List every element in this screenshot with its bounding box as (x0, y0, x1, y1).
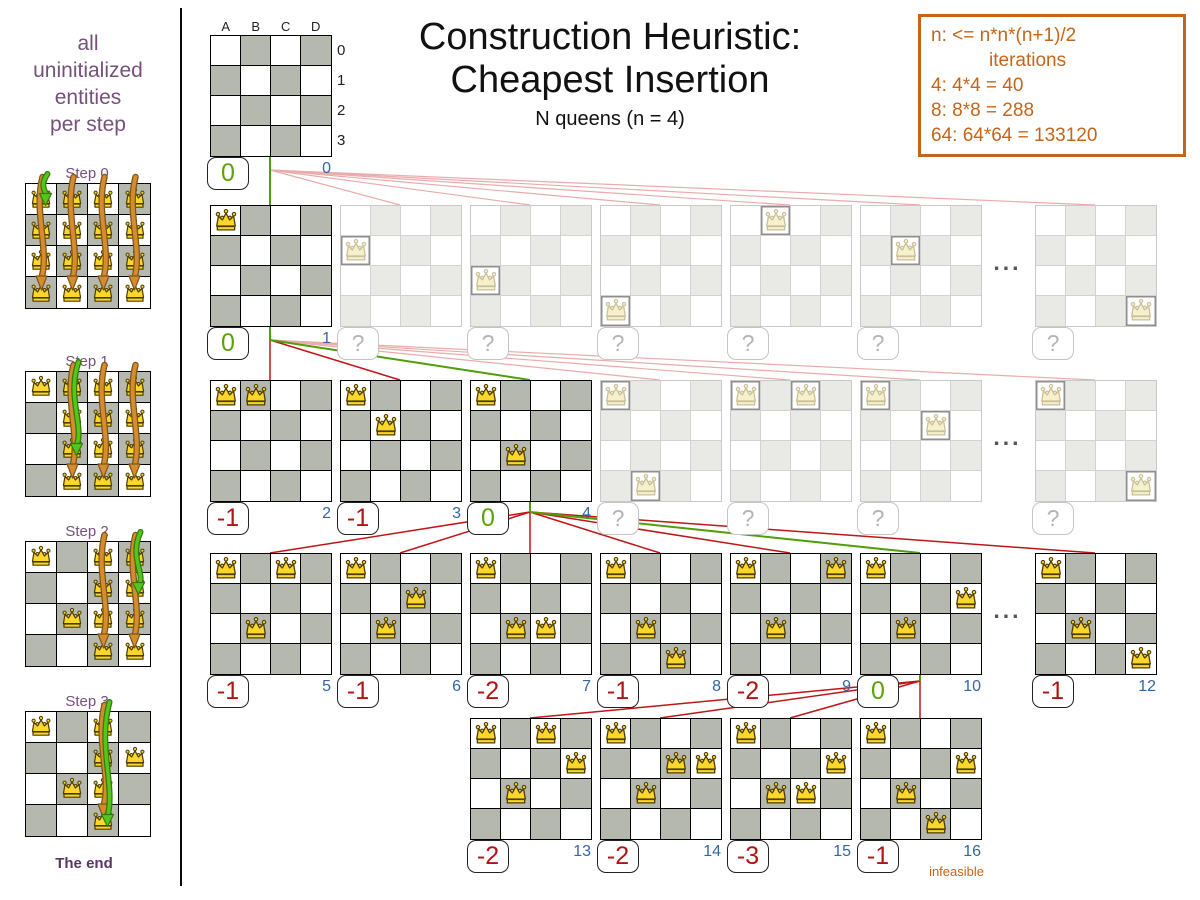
board-cell (341, 584, 371, 614)
score-badge: ? (727, 327, 769, 360)
board-cell (921, 554, 951, 584)
chessboard-grid (471, 381, 591, 501)
ellipsis: ... (980, 249, 1035, 276)
queen-icon (503, 781, 529, 807)
board-cell (431, 266, 461, 296)
board-cell (601, 381, 631, 411)
board-cell (271, 36, 301, 66)
board-cell (1126, 554, 1156, 584)
queen-icon (823, 751, 849, 777)
board-cell (731, 206, 761, 236)
board-cell (341, 206, 371, 236)
board-cell (341, 644, 371, 674)
board-cell (1096, 471, 1126, 501)
step-arrows (26, 372, 150, 496)
queen-icon (473, 383, 499, 409)
board-index: 10 (963, 678, 981, 696)
board-cell (691, 749, 721, 779)
board-cell (631, 381, 661, 411)
board-cell (561, 236, 591, 266)
board-cell (951, 441, 981, 471)
board-cell (1126, 411, 1156, 441)
board-cell (241, 441, 271, 471)
queen-icon (273, 556, 299, 582)
queen-icon (213, 208, 239, 234)
board-cell (471, 381, 501, 411)
board-cell (531, 206, 561, 236)
caption-line: uninitialized (6, 57, 170, 84)
board-cell (601, 441, 631, 471)
board-cell (531, 411, 561, 441)
board-cell (371, 614, 401, 644)
board-cell (731, 809, 761, 839)
chessboard-grid (1036, 554, 1156, 674)
chessboard-grid (471, 554, 591, 674)
board-cell (821, 266, 851, 296)
board-cell (271, 266, 301, 296)
board-index: 2 (322, 505, 331, 523)
board-cell (821, 554, 851, 584)
board-cell (241, 614, 271, 644)
chessboard (340, 205, 462, 327)
board-cell (1036, 236, 1066, 266)
board-cell (951, 296, 981, 326)
board-cell (271, 441, 301, 471)
board-cell (471, 584, 501, 614)
board-cell (661, 381, 691, 411)
chessboard-grid (601, 381, 721, 501)
board-cell (791, 471, 821, 501)
score-badge: ? (467, 327, 509, 360)
board-cell (661, 471, 691, 501)
chessboard (340, 380, 462, 502)
board-cell (1066, 266, 1096, 296)
board-cell (471, 779, 501, 809)
chessboard (860, 718, 982, 840)
chessboard (730, 718, 852, 840)
board-cell (471, 554, 501, 584)
chessboard (25, 371, 151, 497)
chessboard (25, 711, 151, 837)
board-cell (691, 381, 721, 411)
board-cell (501, 411, 531, 441)
board-cell (471, 206, 501, 236)
queen-icon (863, 556, 889, 582)
board-cell (1096, 441, 1126, 471)
board-cell (1066, 206, 1096, 236)
board-cell (1036, 614, 1066, 644)
board-cell (431, 554, 461, 584)
board-cell (661, 809, 691, 839)
board-cell (431, 236, 461, 266)
queen-icon (953, 586, 979, 612)
board-cell (631, 719, 661, 749)
board-cell (561, 584, 591, 614)
board-cell (791, 809, 821, 839)
queen-icon (473, 268, 499, 294)
board-cell (341, 411, 371, 441)
queen-icon (603, 721, 629, 747)
board-cell (761, 554, 791, 584)
board-cell (301, 584, 331, 614)
board-cell (921, 614, 951, 644)
board-cell (531, 554, 561, 584)
ellipsis: ... (980, 597, 1035, 624)
queen-icon (793, 781, 819, 807)
board-cell (271, 236, 301, 266)
board-index: 3 (452, 505, 461, 523)
board-cell (891, 644, 921, 674)
board-cell (431, 441, 461, 471)
board-cell (1036, 206, 1066, 236)
board-cell (1066, 296, 1096, 326)
queen-icon (533, 721, 559, 747)
queen-icon (633, 473, 659, 499)
board-cell (531, 779, 561, 809)
info-line: n: <= n*n*(n+1)/2 (931, 23, 1173, 48)
board-cell (241, 96, 271, 126)
board-cell (341, 381, 371, 411)
queen-icon (1038, 383, 1064, 409)
board-cell (631, 206, 661, 236)
queen-icon (633, 781, 659, 807)
board-cell (861, 749, 891, 779)
row-label: 0 (337, 36, 353, 66)
board-cell (601, 554, 631, 584)
board-cell (531, 749, 561, 779)
queen-icon (763, 208, 789, 234)
board-cell (951, 644, 981, 674)
chessboard (600, 205, 722, 327)
board-cell (631, 809, 661, 839)
board-cell (891, 719, 921, 749)
info-line: 64: 64*64 = 133120 (931, 123, 1173, 148)
board-cell (921, 779, 951, 809)
board-cell (921, 749, 951, 779)
board-cell (631, 411, 661, 441)
board-cell (951, 554, 981, 584)
queen-icon (373, 413, 399, 439)
step-arrows (26, 542, 150, 666)
score-badge: 0 (207, 327, 249, 360)
step-arrows (26, 184, 150, 308)
queen-icon (243, 616, 269, 642)
solution-board: -112 (1035, 553, 1157, 675)
board-cell (601, 236, 631, 266)
board-cell (271, 644, 301, 674)
board-cell (301, 296, 331, 326)
board-cell (561, 749, 591, 779)
chessboard (600, 553, 722, 675)
board-cell (601, 296, 631, 326)
board-cell (661, 554, 691, 584)
board-cell (1066, 236, 1096, 266)
chessboard-grid (731, 554, 851, 674)
score-badge: 0 (207, 157, 249, 190)
board-cell (271, 584, 301, 614)
queen-icon (343, 556, 369, 582)
score-badge: -2 (727, 675, 769, 708)
score-badge: -1 (597, 675, 639, 708)
board-cell (861, 441, 891, 471)
board-cell (661, 206, 691, 236)
board-cell (561, 381, 591, 411)
queen-icon (693, 751, 719, 777)
board-cell (601, 411, 631, 441)
board-cell (1066, 471, 1096, 501)
board-cell (761, 719, 791, 749)
solution-board: 01 (210, 205, 332, 327)
board-cell (341, 441, 371, 471)
page-subtitle: N queens (n = 4) (330, 108, 890, 131)
chessboard (860, 380, 982, 502)
board-cell (601, 644, 631, 674)
queen-icon (473, 556, 499, 582)
board-cell (661, 779, 691, 809)
board-cell (561, 206, 591, 236)
board-cell (761, 809, 791, 839)
board-cell (341, 266, 371, 296)
page-title: Construction Heuristic: Cheapest Inserti… (330, 16, 890, 101)
chessboard (860, 205, 982, 327)
queen-icon (1038, 556, 1064, 582)
board-cell (1066, 381, 1096, 411)
board-cell (371, 381, 401, 411)
board-cell (921, 584, 951, 614)
board-index: 14 (703, 843, 721, 861)
queen-icon (633, 616, 659, 642)
board-cell (241, 126, 271, 156)
board-cell (761, 779, 791, 809)
queen-icon (1128, 646, 1154, 672)
board-cell (661, 749, 691, 779)
board-cell (631, 266, 661, 296)
board-cell (561, 471, 591, 501)
board-index: 8 (712, 678, 721, 696)
queen-icon (343, 383, 369, 409)
board-cell (561, 644, 591, 674)
board-cell (821, 381, 851, 411)
chessboard-grid (731, 719, 851, 839)
board-cell (531, 644, 561, 674)
board-cell (431, 644, 461, 674)
board-cell (401, 381, 431, 411)
board-cell (1126, 206, 1156, 236)
info-line: iterations (931, 48, 1173, 73)
solution-board: -13 (340, 380, 462, 502)
solution-board: -15 (210, 553, 332, 675)
score-badge: 0 (467, 502, 509, 535)
board-cell (431, 206, 461, 236)
board-cell (301, 66, 331, 96)
board-cell (731, 296, 761, 326)
board-cell (371, 554, 401, 584)
board-cell (1036, 644, 1066, 674)
board-cell (241, 236, 271, 266)
board-index: 6 (452, 678, 461, 696)
board-cell (761, 206, 791, 236)
info-line: 4: 4*4 = 40 (931, 73, 1173, 98)
board-cell (1096, 266, 1126, 296)
board-cell (731, 381, 761, 411)
board-cell (501, 749, 531, 779)
board-cell (631, 296, 661, 326)
board-index: 13 (573, 843, 591, 861)
board-cell (631, 584, 661, 614)
board-cell (1066, 614, 1096, 644)
board-cell (821, 206, 851, 236)
board-cell (891, 266, 921, 296)
board-cell (211, 381, 241, 411)
board-cell (691, 809, 721, 839)
board-cell (241, 36, 271, 66)
board-cell (1096, 381, 1126, 411)
board-cell (501, 441, 531, 471)
vertical-divider (180, 8, 182, 886)
board-cell (401, 411, 431, 441)
step-label: Step 3 (25, 693, 149, 710)
board-cell (241, 411, 271, 441)
board-cell (791, 441, 821, 471)
board-cell (731, 411, 761, 441)
board-cell (731, 471, 761, 501)
board-cell (471, 719, 501, 749)
board-cell (211, 554, 241, 584)
board-cell (271, 614, 301, 644)
board-cell (661, 296, 691, 326)
column-label: C (271, 19, 301, 34)
board-cell (631, 554, 661, 584)
chessboard-grid (861, 719, 981, 839)
queen-icon (213, 556, 239, 582)
queen-icon (663, 646, 689, 672)
chessboard (210, 553, 332, 675)
board-cell (1096, 236, 1126, 266)
board-cell (631, 614, 661, 644)
board-cell (431, 411, 461, 441)
board-cell (861, 719, 891, 749)
board-cell (1066, 644, 1096, 674)
board-cell (1066, 584, 1096, 614)
board-cell (371, 644, 401, 674)
chessboard-grid (861, 381, 981, 501)
chessboard: ABCD0123 (210, 35, 332, 157)
column-label: B (241, 19, 271, 34)
board-cell (501, 471, 531, 501)
board-cell (891, 441, 921, 471)
board-cell (921, 411, 951, 441)
score-badge: ? (1032, 327, 1074, 360)
board-cell (951, 206, 981, 236)
board-cell (471, 749, 501, 779)
queen-icon (213, 383, 239, 409)
board-cell (1036, 296, 1066, 326)
board-cell (891, 779, 921, 809)
board-cell (631, 236, 661, 266)
queen-icon (953, 751, 979, 777)
board-cell (731, 441, 761, 471)
board-cell (1096, 554, 1126, 584)
solution-board: ? (730, 380, 852, 502)
board-cell (861, 644, 891, 674)
board-cell (731, 236, 761, 266)
board-cell (401, 296, 431, 326)
board-cell (501, 206, 531, 236)
board-cell (271, 206, 301, 236)
board-cell (951, 719, 981, 749)
board-cell (1036, 584, 1066, 614)
title-line-2: Cheapest Insertion (330, 59, 890, 102)
board-cell (371, 236, 401, 266)
board-cell (731, 779, 761, 809)
score-badge: -3 (727, 840, 769, 873)
board-cell (661, 584, 691, 614)
chessboard-grid (471, 206, 591, 326)
solution-board: ? (340, 205, 462, 327)
board-cell (401, 441, 431, 471)
solution-board: -16 (340, 553, 462, 675)
board-cell (791, 411, 821, 441)
board-cell (861, 584, 891, 614)
board-cell (951, 266, 981, 296)
board-cell (371, 584, 401, 614)
board-cell (471, 296, 501, 326)
board-cell (241, 644, 271, 674)
board-cell (921, 719, 951, 749)
chessboard (1035, 553, 1157, 675)
board-cell (471, 809, 501, 839)
board-cell (501, 779, 531, 809)
board-cell (761, 296, 791, 326)
board-cell (731, 719, 761, 749)
board-cell (561, 441, 591, 471)
chessboard (210, 205, 332, 327)
board-cell (531, 471, 561, 501)
step-board (25, 711, 151, 837)
board-cell (1126, 614, 1156, 644)
board-cell (691, 719, 721, 749)
board-cell (501, 381, 531, 411)
chessboard-grid (211, 381, 331, 501)
board-cell (951, 614, 981, 644)
board-cell (601, 719, 631, 749)
board-cell (951, 749, 981, 779)
chessboard-grid (211, 36, 331, 156)
title-line-1: Construction Heuristic: (330, 16, 890, 59)
queen-icon (733, 556, 759, 582)
board-cell (951, 584, 981, 614)
board-cell (791, 614, 821, 644)
queen-icon (893, 781, 919, 807)
board-cell (401, 614, 431, 644)
board-cell (341, 236, 371, 266)
queen-icon (243, 383, 269, 409)
board-cell (301, 36, 331, 66)
board-cell (761, 441, 791, 471)
board-cell (821, 441, 851, 471)
board-cell (891, 584, 921, 614)
board-cell (471, 266, 501, 296)
board-index: 16 (963, 843, 981, 861)
row-label: 1 (337, 66, 353, 96)
board-cell (561, 554, 591, 584)
chessboard-grid (471, 719, 591, 839)
chessboard-grid (341, 206, 461, 326)
board-cell (501, 584, 531, 614)
queen-icon (533, 616, 559, 642)
step-arrows (26, 712, 150, 836)
board-cell (471, 441, 501, 471)
